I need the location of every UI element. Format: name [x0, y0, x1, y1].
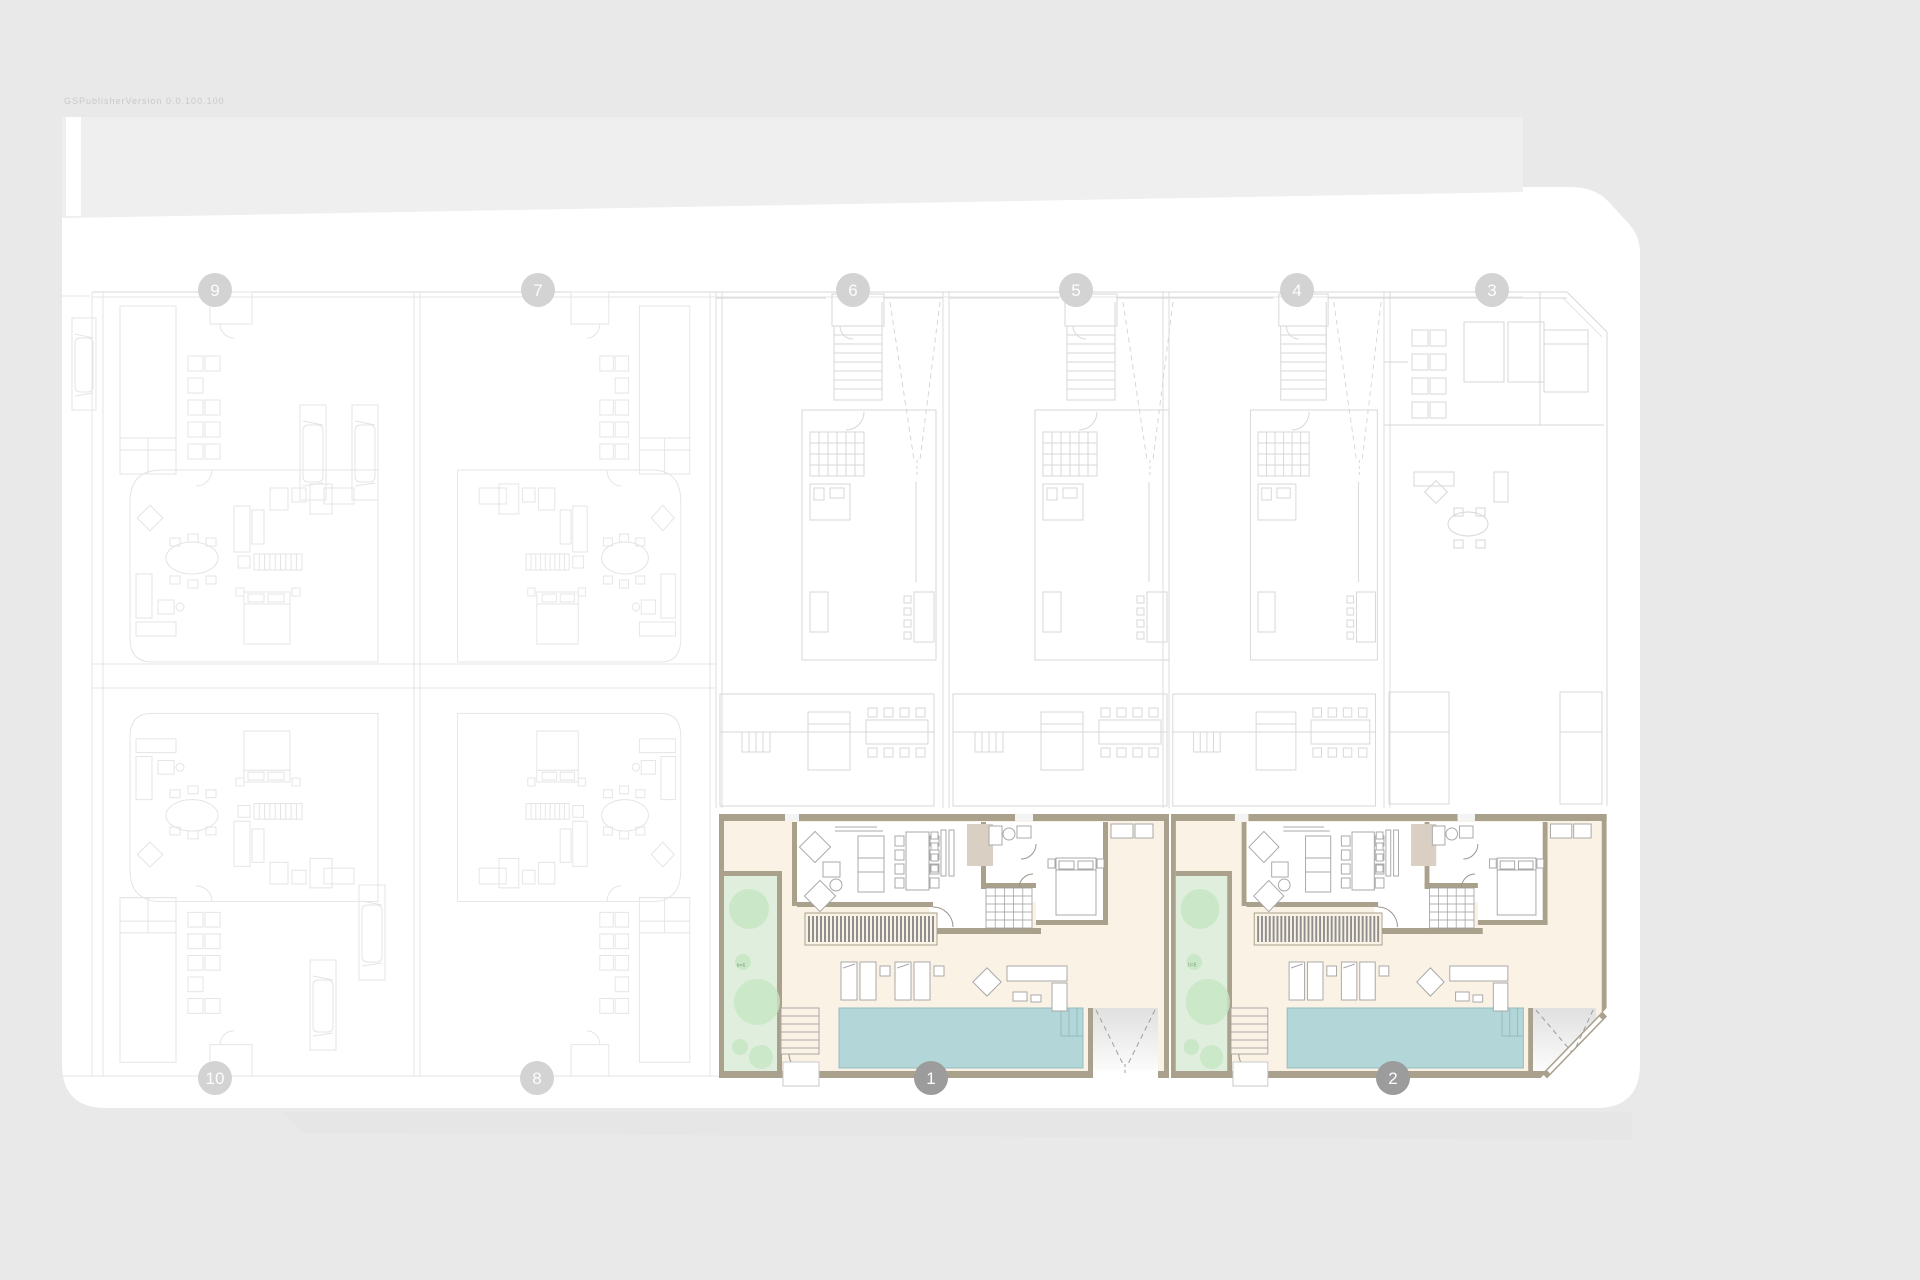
grid-marker-6: 6 — [836, 273, 870, 307]
svg-text:6: 6 — [848, 281, 857, 300]
svg-text:2: 2 — [1388, 1069, 1397, 1088]
floor-plan-drawing: h=6h=697654310812 — [0, 0, 1920, 1280]
grid-marker-2: 2 — [1376, 1061, 1410, 1095]
watermark-text: GSPublisherVersion 0.0.100.100 — [64, 96, 225, 106]
svg-text:4: 4 — [1292, 281, 1301, 300]
grid-marker-4: 4 — [1280, 273, 1314, 307]
grid-marker-8: 8 — [520, 1061, 554, 1095]
grid-marker-5: 5 — [1059, 273, 1093, 307]
grid-marker-7: 7 — [521, 273, 555, 307]
grid-marker-1: 1 — [914, 1061, 948, 1095]
svg-text:7: 7 — [533, 281, 542, 300]
site-plan-canvas: h=6h=697654310812 GSPublisherVersion 0.0… — [0, 0, 1920, 1280]
svg-text:5: 5 — [1071, 281, 1080, 300]
highlighted-unit-2: h=6 — [1171, 814, 1609, 1086]
grid-marker-3: 3 — [1475, 273, 1509, 307]
svg-text:8: 8 — [532, 1069, 541, 1088]
svg-text:10: 10 — [206, 1069, 225, 1088]
highlighted-unit-1: h=6 — [719, 814, 1169, 1086]
highlighted-units-block: h=6h=6 — [719, 814, 1609, 1086]
svg-text:3: 3 — [1487, 281, 1496, 300]
svg-text:h=6: h=6 — [1188, 962, 1196, 968]
svg-text:h=6: h=6 — [737, 963, 746, 969]
grid-marker-10: 10 — [198, 1061, 232, 1095]
svg-text:1: 1 — [926, 1069, 935, 1088]
svg-text:9: 9 — [210, 281, 219, 300]
grid-marker-9: 9 — [198, 273, 232, 307]
